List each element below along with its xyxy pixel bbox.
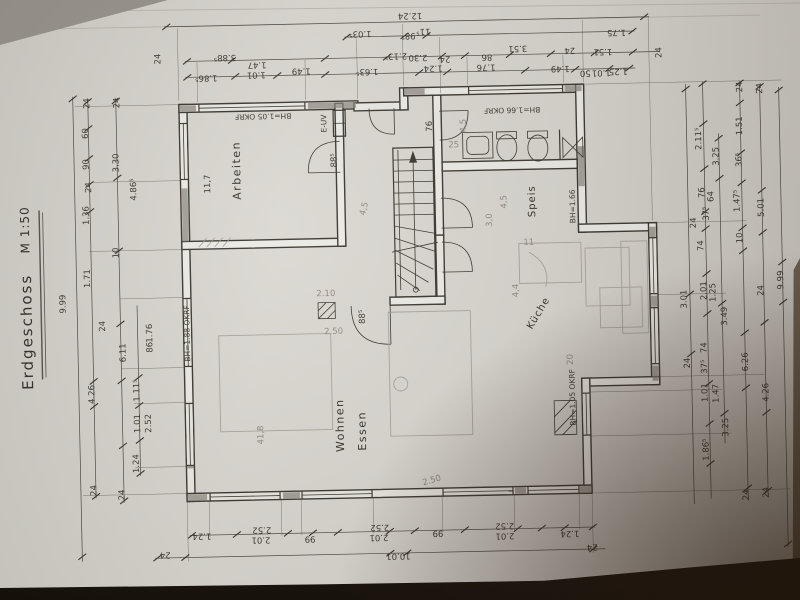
dim-label: 10: [111, 247, 121, 258]
sill-height-label: BH=1.05 OKRF: [235, 111, 292, 121]
dim-label: 36⁵: [734, 153, 744, 167]
room-label-kueche: Küche: [525, 295, 553, 331]
dim-label: 1.01: [700, 383, 710, 402]
dim-label: 3.25: [721, 418, 731, 437]
bath-fixtures: [462, 129, 583, 163]
room-area-arbeiten: 11,7: [203, 174, 213, 193]
dim-label: 2.13⁵: [385, 50, 408, 60]
sill-height-label: BH=1.88 OKRF: [182, 305, 192, 362]
dim-label: 1.75: [607, 27, 626, 37]
dim-label: 2.11⁵: [694, 127, 704, 150]
dim-label: 3.01: [679, 289, 689, 308]
pencil-note: 20: [566, 354, 576, 365]
dim-label: 1.49: [551, 63, 570, 73]
dim-labels-right: 24 24 2.11⁵ 1.51 3.25 36⁵ 76 64 1.47⁵ 37…: [675, 81, 791, 502]
dim-label: 12.24: [398, 10, 423, 21]
floorplan-drawing: Erdgeschoss M 1:50: [0, 0, 800, 600]
label-euv: E-UV: [319, 114, 328, 133]
dim-labels-left: 9.99 24 24 60 90 3.30 24 1.36 4.86⁵ 10 1…: [54, 97, 158, 502]
dim-label: 24: [587, 541, 598, 551]
dim-label: 9.99: [58, 294, 68, 313]
pencil-note: 3,0: [485, 213, 495, 227]
dim-label: 1.01: [247, 69, 266, 79]
dim-label: 10: [735, 232, 745, 243]
dim-label: 3.49: [720, 307, 730, 326]
stair-direction-arrow: [409, 151, 417, 163]
dim-label: 24: [654, 47, 664, 58]
dim-label: 99: [432, 528, 443, 538]
dim-label: 6.26: [741, 352, 751, 371]
pencil-note: 2.50: [324, 327, 343, 337]
title-block: Erdgeschoss M 1:50: [15, 206, 46, 390]
dim-label: 74: [696, 240, 706, 251]
paper-sheet: Erdgeschoss M 1:50: [0, 0, 800, 600]
dim-label: 6.11: [118, 343, 128, 362]
dim-label: 1.11⁵: [132, 379, 142, 402]
dim-label: 86: [145, 342, 155, 353]
dim-label: 10.01: [386, 550, 411, 561]
dim-label: 37⁵: [702, 206, 712, 220]
dim-label: 24: [735, 81, 745, 92]
dim-label: 1.25: [609, 66, 628, 76]
dim-label: 2.52: [252, 524, 271, 534]
pencil-note: 2.50: [421, 473, 442, 488]
dim-label: 1.01: [592, 67, 611, 77]
dim-label: 24: [84, 182, 94, 193]
sill-height-label: BH=1.66: [568, 189, 578, 223]
doors: [307, 101, 475, 345]
dim-label: 24: [117, 489, 127, 500]
dim-label: 24: [761, 487, 771, 498]
pencil-note: 4,5: [499, 195, 509, 209]
dim-label: 9.99: [776, 270, 786, 289]
dim-label: 1.71: [83, 269, 93, 288]
dim-label: 98⁵: [401, 30, 415, 40]
dim-label: 3.88⁵: [214, 52, 237, 62]
room-label-speis: Speis: [527, 185, 539, 217]
dim-label: 11⁵: [416, 26, 430, 36]
dim-label: 2.52: [370, 522, 389, 532]
dim-label: 1.47: [247, 59, 266, 69]
dim-label: 2.01: [495, 530, 514, 540]
floorplan-photo: Erdgeschoss M 1:50: [0, 0, 800, 600]
room-label-arbeiten: Arbeiten: [230, 141, 244, 200]
walls: [179, 83, 662, 502]
door-width-label: 76: [425, 121, 435, 132]
dim-label: 60: [81, 128, 91, 139]
room-area-kueche: 4,4: [511, 284, 521, 298]
pencil-note: 2.10: [316, 289, 335, 299]
dim-label: 24: [689, 217, 699, 228]
dim-label: 1.25: [708, 283, 718, 302]
dim-labels-bottom: 1.24 24 2.52 2.01 99 2.52 2.01 99 2.52 2…: [159, 517, 598, 565]
dim-label: 74: [699, 342, 709, 353]
dim-label: 1.86⁵: [701, 438, 711, 461]
dim-label: 4.86⁵: [129, 178, 139, 201]
dim-label: 3.51: [508, 43, 527, 53]
room-label-essen: Essen: [355, 411, 369, 451]
dim-label: 24: [742, 489, 752, 500]
door-width-label: 88⁵: [329, 153, 339, 167]
pencil-note: 11: [523, 238, 534, 248]
dim-label: 5.01: [756, 198, 766, 217]
dim-label: 1.24: [424, 63, 443, 73]
dim-label: 64: [706, 191, 716, 202]
dim-label: 4.26: [761, 383, 771, 402]
pencil-note: 4,5: [358, 201, 371, 217]
pencil-note: 4,5: [459, 119, 469, 133]
dim-label: 24: [756, 285, 766, 296]
dim-label: 50: [580, 67, 591, 77]
dim-label: 1.86⁵: [195, 72, 218, 82]
staircase: [390, 147, 439, 297]
dim-label: 1.51: [593, 46, 612, 56]
sill-height-label: BH=1.05 OKRF: [567, 369, 577, 426]
dim-label: 37⁵: [700, 359, 710, 373]
dim-label: 2.52: [495, 520, 514, 530]
door-width-label: 88⁵: [358, 310, 368, 324]
dim-label: 99: [304, 533, 315, 543]
dim-label: 1.36: [81, 206, 91, 225]
dim-label: 24: [89, 485, 99, 496]
pencil-note: 25: [448, 140, 459, 150]
dim-label: 90: [81, 159, 91, 170]
dim-label: 4.26: [87, 385, 97, 404]
room-area-wohnen-essen: 41,8: [256, 425, 266, 444]
room-label-wohnen: Wohnen: [333, 398, 347, 452]
dim-label: 1.03⁵: [349, 28, 372, 38]
dim-label: 24: [439, 53, 450, 63]
dim-label: 1.63⁵: [356, 66, 379, 76]
dim-labels-top: 12.24 1.03⁵ 98⁵ 11⁵ 2.13⁵ 2.30 1.63⁵ 24 …: [152, 5, 664, 87]
dim-label: 3.25: [711, 147, 721, 166]
dim-label: 1.24: [132, 454, 142, 473]
dim-label: 2.01: [251, 534, 270, 544]
dim-label: 24: [755, 83, 765, 94]
dim-label: 1.47: [711, 384, 721, 403]
dim-label: 24: [683, 357, 693, 368]
dim-label: 24: [153, 53, 163, 64]
dim-label: 86: [481, 52, 492, 62]
scale-label: M 1:50: [17, 206, 32, 253]
dim-label: 24: [160, 549, 171, 559]
page-title: Erdgeschoss: [17, 274, 37, 390]
dim-label: 1.24: [560, 528, 579, 538]
dim-label: 1.76: [477, 61, 496, 71]
dim-label: 2.52: [144, 414, 154, 433]
dim-label: 3.30: [111, 153, 121, 172]
dim-label: 24: [564, 45, 575, 55]
dim-label: 1.47⁵: [732, 190, 742, 213]
dim-label: 1.49: [292, 65, 311, 75]
dim-label: 1.76: [145, 324, 155, 343]
dim-label: 2.30: [408, 52, 427, 62]
dim-label: 24: [82, 98, 92, 109]
dim-label: 1.24: [192, 531, 211, 541]
dim-label: 1.51: [735, 116, 745, 135]
sill-height-label: BH=1.66 OKRF: [484, 105, 541, 115]
dim-label: 24: [98, 321, 108, 332]
dim-label: 1.01: [133, 414, 143, 433]
dim-label: 2.01: [369, 532, 388, 542]
dim-label: 24: [112, 97, 122, 108]
